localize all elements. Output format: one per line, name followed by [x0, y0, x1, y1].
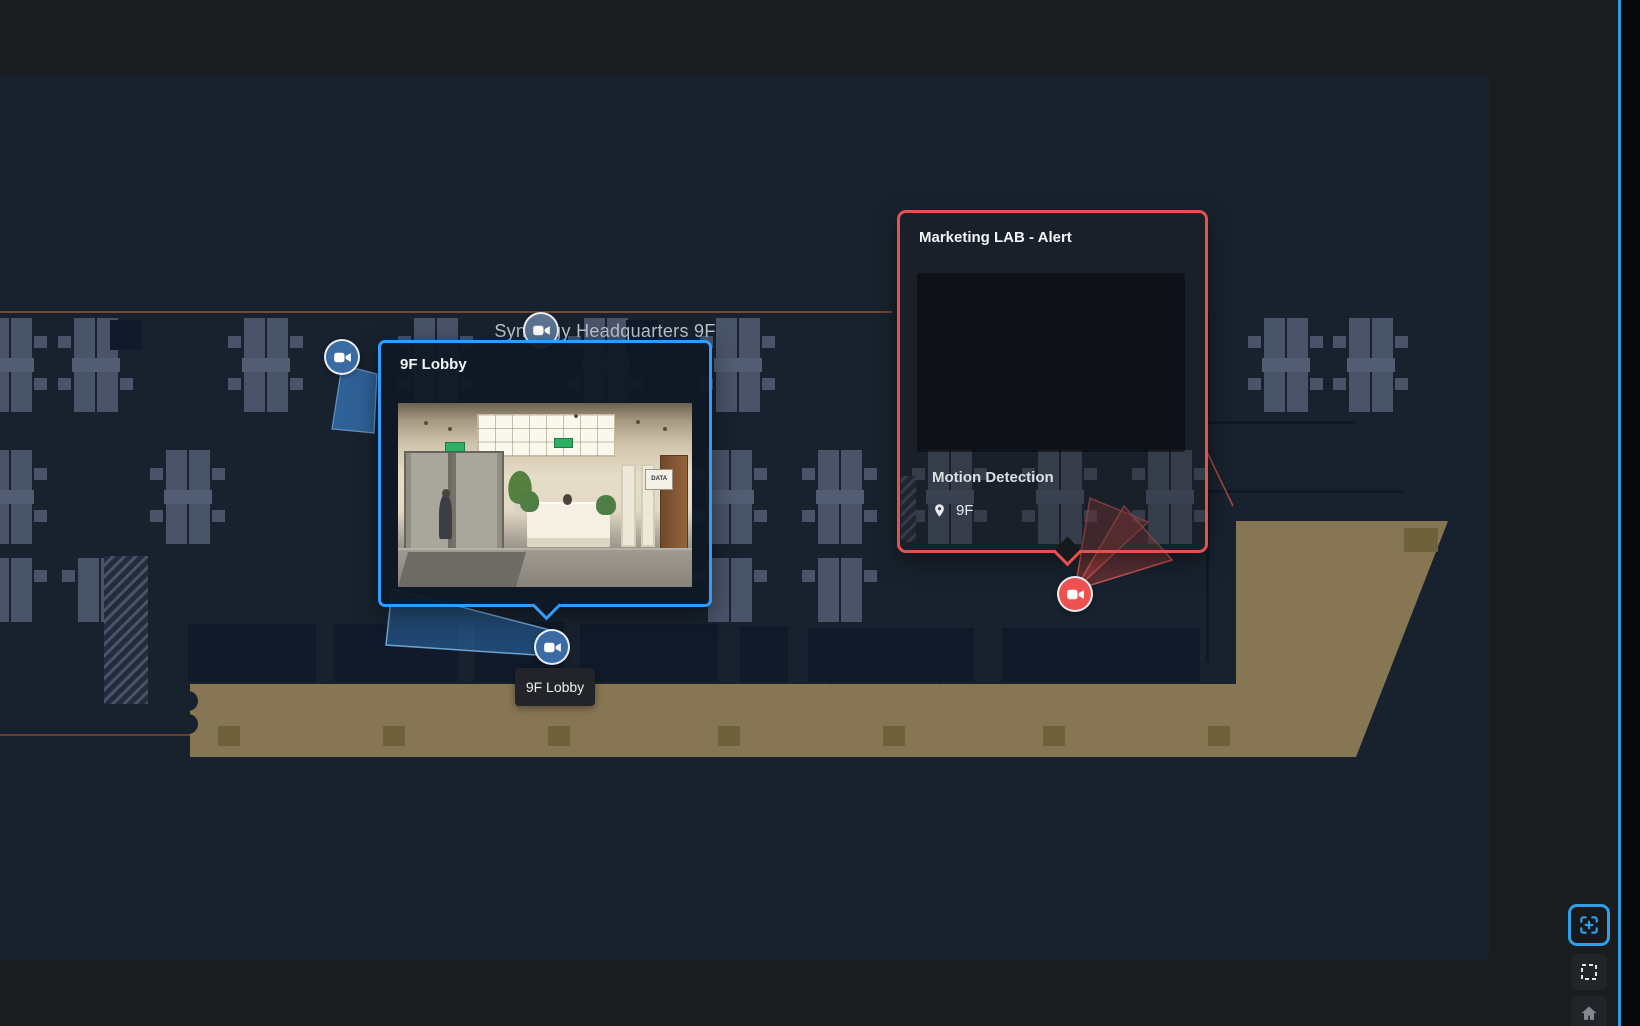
floor-map-canvas[interactable]: Synology Headquarters 9F	[0, 75, 1489, 959]
data-sign: DATA	[645, 469, 673, 489]
right-black-strip	[1621, 0, 1640, 1026]
camera-marker-west[interactable]	[324, 339, 360, 375]
home-button[interactable]	[1571, 996, 1607, 1026]
video-camera-icon	[543, 640, 562, 655]
video-camera-icon	[333, 350, 352, 365]
desk-plant	[520, 491, 539, 511]
alert-popup[interactable]: Marketing LAB - Alert Motion Detection 9…	[897, 210, 1208, 553]
fit-view-button[interactable]	[1568, 904, 1610, 946]
camera-preview-popup[interactable]: 9F Lobby DATA	[378, 340, 712, 607]
frame-plus-icon	[1578, 914, 1600, 936]
camera-tooltip: 9F Lobby	[515, 668, 595, 706]
exit-sign	[445, 442, 465, 452]
camera-feed-image: DATA	[398, 403, 692, 587]
map-title: Synology Headquarters 9F	[420, 321, 790, 342]
ceiling-spotlight	[448, 427, 452, 431]
person-head	[442, 489, 450, 498]
alert-event-type: Motion Detection	[932, 469, 1054, 486]
alert-location-row: 9F	[932, 501, 974, 520]
ceiling-spotlight	[636, 420, 640, 424]
white-door	[621, 464, 636, 547]
ceiling-spotlight	[663, 427, 667, 431]
carpet-tiles	[398, 552, 526, 587]
video-camera-icon	[1066, 587, 1085, 602]
desk-plant	[596, 495, 615, 515]
emap-view: Synology Headquarters 9F 9F Lobby	[0, 0, 1640, 1026]
exit-sign	[554, 438, 574, 448]
home-icon	[1579, 1004, 1599, 1024]
dashed-square-icon	[1579, 962, 1599, 982]
alert-video-area	[917, 273, 1185, 452]
camera-marker-south[interactable]	[534, 629, 570, 665]
receptionist	[563, 494, 572, 505]
region-select-button[interactable]	[1571, 954, 1607, 990]
location-pin-icon	[932, 501, 947, 520]
alert-location-label: 9F	[956, 502, 974, 519]
camera-marker-alert[interactable]	[1057, 576, 1093, 612]
floorplan-graphic	[0, 75, 1489, 959]
person-silhouette	[439, 495, 451, 539]
alert-popup-title: Marketing LAB - Alert	[919, 229, 1205, 246]
camera-popup-title: 9F Lobby	[400, 356, 709, 373]
video-camera-icon	[532, 323, 551, 338]
